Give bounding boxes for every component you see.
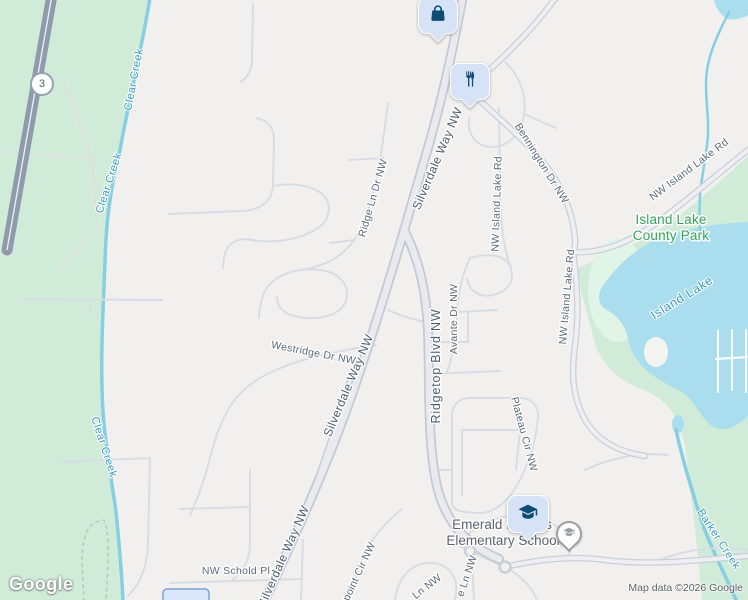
highway-3-shield: 3 bbox=[30, 72, 54, 96]
label-e-ln-nw: e Ln NW bbox=[454, 554, 479, 599]
label-school-line2: Elementary School bbox=[446, 533, 559, 548]
shopping-bag-icon bbox=[428, 3, 448, 28]
map-attribution: Map data ©2026 Google bbox=[628, 582, 743, 594]
highway-3-number: 3 bbox=[39, 78, 45, 90]
google-logo[interactable]: Google bbox=[9, 574, 73, 595]
graduation-cap-gray-icon bbox=[562, 525, 576, 544]
highlighted-building bbox=[163, 589, 209, 600]
graduation-cap-icon bbox=[516, 500, 540, 529]
label-ridgepoint: Ridgepoint Cir NW bbox=[328, 540, 378, 600]
restaurant-poi-pin[interactable] bbox=[450, 63, 490, 100]
label-silverdale-2: Silverdale Way NW bbox=[320, 332, 376, 439]
label-ridgetop: Ridgetop Blvd NW bbox=[429, 309, 443, 424]
label-park-line1: Island Lake bbox=[635, 212, 706, 227]
label-nw-schold: NW Schold Pl bbox=[202, 565, 270, 577]
label-bennington: Bennington Dr NW bbox=[512, 121, 571, 206]
school-poi-pin[interactable] bbox=[507, 495, 549, 533]
shopping-poi-pin[interactable] bbox=[418, 0, 458, 34]
label-ridge-ln: Ridge Ln Dr NW bbox=[356, 158, 390, 239]
ridgetop-blvd-road bbox=[404, 230, 499, 559]
restaurant-icon bbox=[460, 69, 480, 94]
map-canvas[interactable]: Clear Creek Clear Creek Clear Creek Ridg… bbox=[0, 0, 748, 600]
school-secondary-poi[interactable] bbox=[556, 521, 582, 547]
label-avante: Avante Dr NW bbox=[448, 284, 460, 355]
lake-island bbox=[644, 337, 668, 367]
barker-creek-pool bbox=[672, 415, 684, 433]
map-tiles: Clear Creek Clear Creek Clear Creek Ridg… bbox=[0, 0, 748, 600]
label-park-line2: County Park bbox=[633, 228, 710, 243]
silverdale-way-road bbox=[264, 0, 463, 600]
label-ln-nw: Ln NW bbox=[410, 572, 444, 600]
top-right-pond bbox=[714, 0, 748, 20]
label-westridge: Westridge Dr NW bbox=[270, 339, 357, 367]
roundabout bbox=[500, 562, 511, 573]
